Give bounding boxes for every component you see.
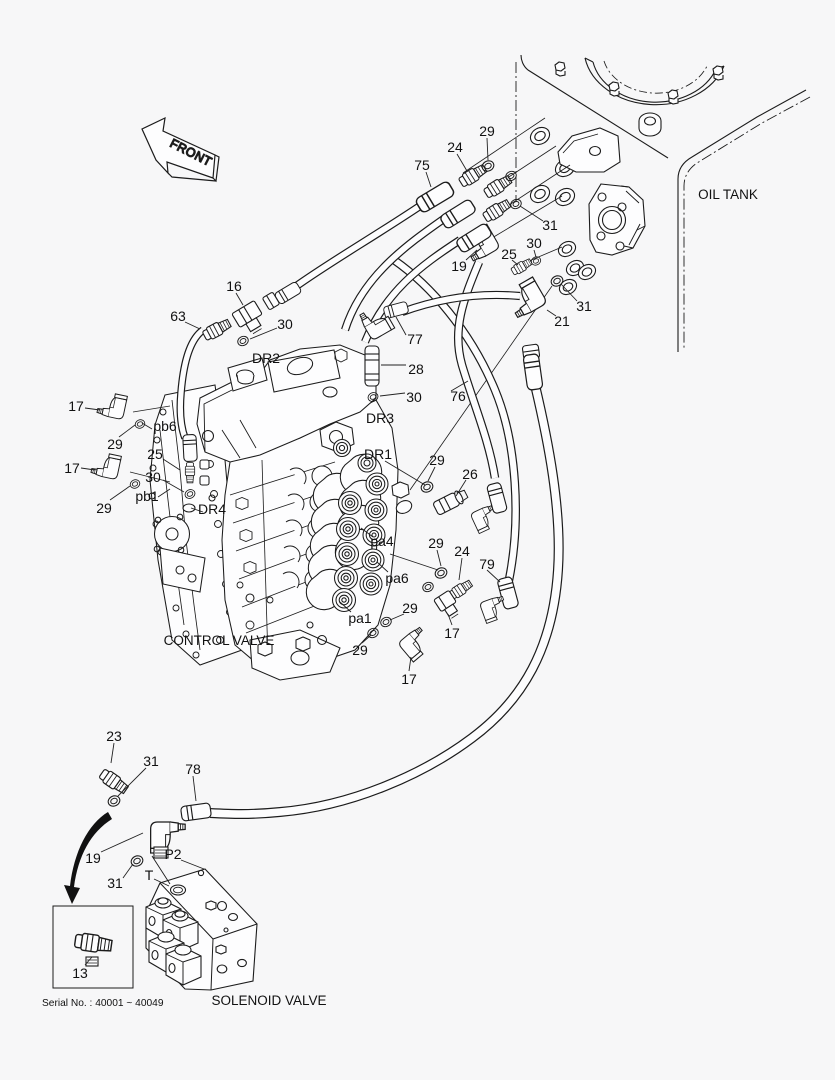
svg-text:pb1: pb1 <box>135 488 159 504</box>
svg-text:29: 29 <box>428 535 444 551</box>
svg-text:29: 29 <box>402 600 418 616</box>
svg-text:31: 31 <box>143 753 159 769</box>
svg-text:78: 78 <box>185 761 201 777</box>
svg-text:31: 31 <box>542 217 558 233</box>
svg-text:T: T <box>145 867 154 883</box>
svg-text:28: 28 <box>408 361 424 377</box>
svg-text:pa6: pa6 <box>385 570 409 586</box>
svg-text:30: 30 <box>526 235 542 251</box>
svg-text:DR4: DR4 <box>198 501 226 517</box>
svg-text:OIL TANK: OIL TANK <box>698 187 758 202</box>
svg-text:29: 29 <box>429 452 445 468</box>
svg-text:CONTROL VALVE: CONTROL VALVE <box>164 633 275 648</box>
svg-text:25: 25 <box>501 246 517 262</box>
svg-text:63: 63 <box>170 308 186 324</box>
svg-text:75: 75 <box>414 157 430 173</box>
svg-text:31: 31 <box>576 298 592 314</box>
svg-text:76: 76 <box>450 388 466 404</box>
svg-text:21: 21 <box>554 313 570 329</box>
svg-text:pa1: pa1 <box>348 610 372 626</box>
svg-text:24: 24 <box>454 543 470 559</box>
svg-text:17: 17 <box>68 398 84 414</box>
svg-text:29: 29 <box>352 642 368 658</box>
svg-text:30: 30 <box>145 469 161 485</box>
svg-text:30: 30 <box>277 316 293 332</box>
svg-text:31: 31 <box>107 875 123 891</box>
svg-text:19: 19 <box>451 258 467 274</box>
svg-text:Serial No. : 40001 ~ 40049: Serial No. : 40001 ~ 40049 <box>42 998 164 1009</box>
svg-text:13: 13 <box>72 965 88 981</box>
svg-text:29: 29 <box>107 436 123 452</box>
svg-text:16: 16 <box>226 278 242 294</box>
svg-text:pa4: pa4 <box>370 533 394 549</box>
svg-text:79: 79 <box>479 556 495 572</box>
svg-text:SOLENOID VALVE: SOLENOID VALVE <box>211 993 326 1008</box>
svg-text:29: 29 <box>479 123 495 139</box>
svg-text:30: 30 <box>406 389 422 405</box>
svg-text:17: 17 <box>444 625 460 641</box>
svg-text:26: 26 <box>462 466 478 482</box>
svg-text:19: 19 <box>85 850 101 866</box>
svg-text:17: 17 <box>64 460 80 476</box>
svg-text:23: 23 <box>106 728 122 744</box>
svg-text:P2: P2 <box>164 846 181 862</box>
svg-text:pb6: pb6 <box>153 418 177 434</box>
svg-text:29: 29 <box>96 500 112 516</box>
svg-text:DR1: DR1 <box>364 446 392 462</box>
svg-text:24: 24 <box>447 139 463 155</box>
svg-text:17: 17 <box>401 671 417 687</box>
svg-text:DR2: DR2 <box>252 350 280 366</box>
svg-text:25: 25 <box>147 446 163 462</box>
svg-text:77: 77 <box>407 331 423 347</box>
svg-text:DR3: DR3 <box>366 410 394 426</box>
